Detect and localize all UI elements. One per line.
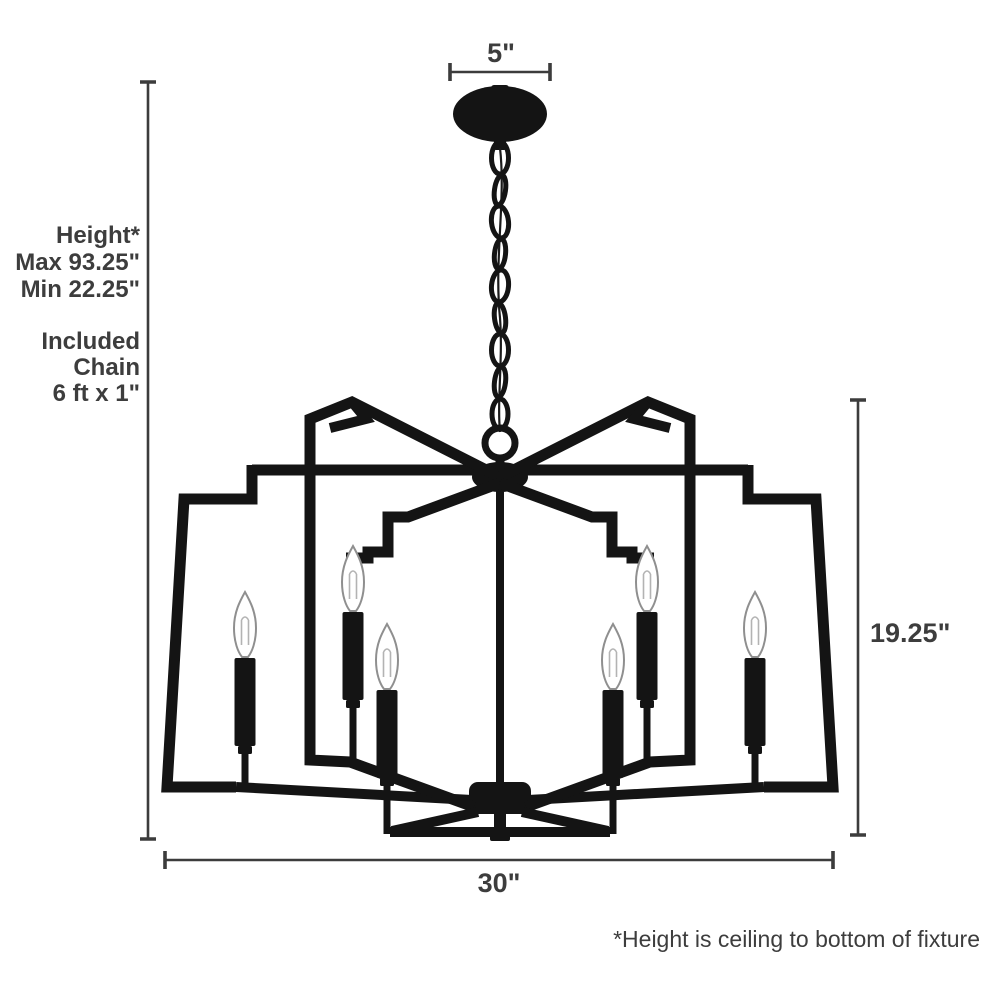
height-footnote: *Height is ceiling to bottom of fixture [613,926,980,952]
dim-canopy-width: 5" [450,38,550,81]
canopy [453,86,547,142]
height-max: Max 93.25" [15,249,140,276]
frame-right-half [498,402,833,834]
chain [490,142,510,432]
dim-overall-height [140,82,156,839]
chandelier [167,85,833,841]
height-title: Height* [56,222,141,249]
bottom-hub [469,782,531,814]
chain-included-line3: 6 ft x 1" [53,380,140,407]
dim-fixture-height-label: 19.25" [870,618,950,648]
height-min: Min 22.25" [21,276,140,303]
dim-fixture-width-label: 30" [478,868,521,898]
chain-included-line1: Included [41,328,140,355]
dim-fixture-width: 30" [165,851,833,898]
chain-included-line2: Chain [73,354,140,381]
frame-left-half [167,402,502,834]
height-spec-block: Height* Max 93.25" Min 22.25" Included C… [15,222,140,407]
hanging-ring [485,428,515,458]
dim-fixture-height: 19.25" [850,400,950,835]
dim-canopy-width-label: 5" [487,38,515,68]
center-rod [496,480,504,786]
chandelier-dimension-diagram: 5" Height* Max 93.25" Min 22.25" Include… [0,0,1000,1000]
